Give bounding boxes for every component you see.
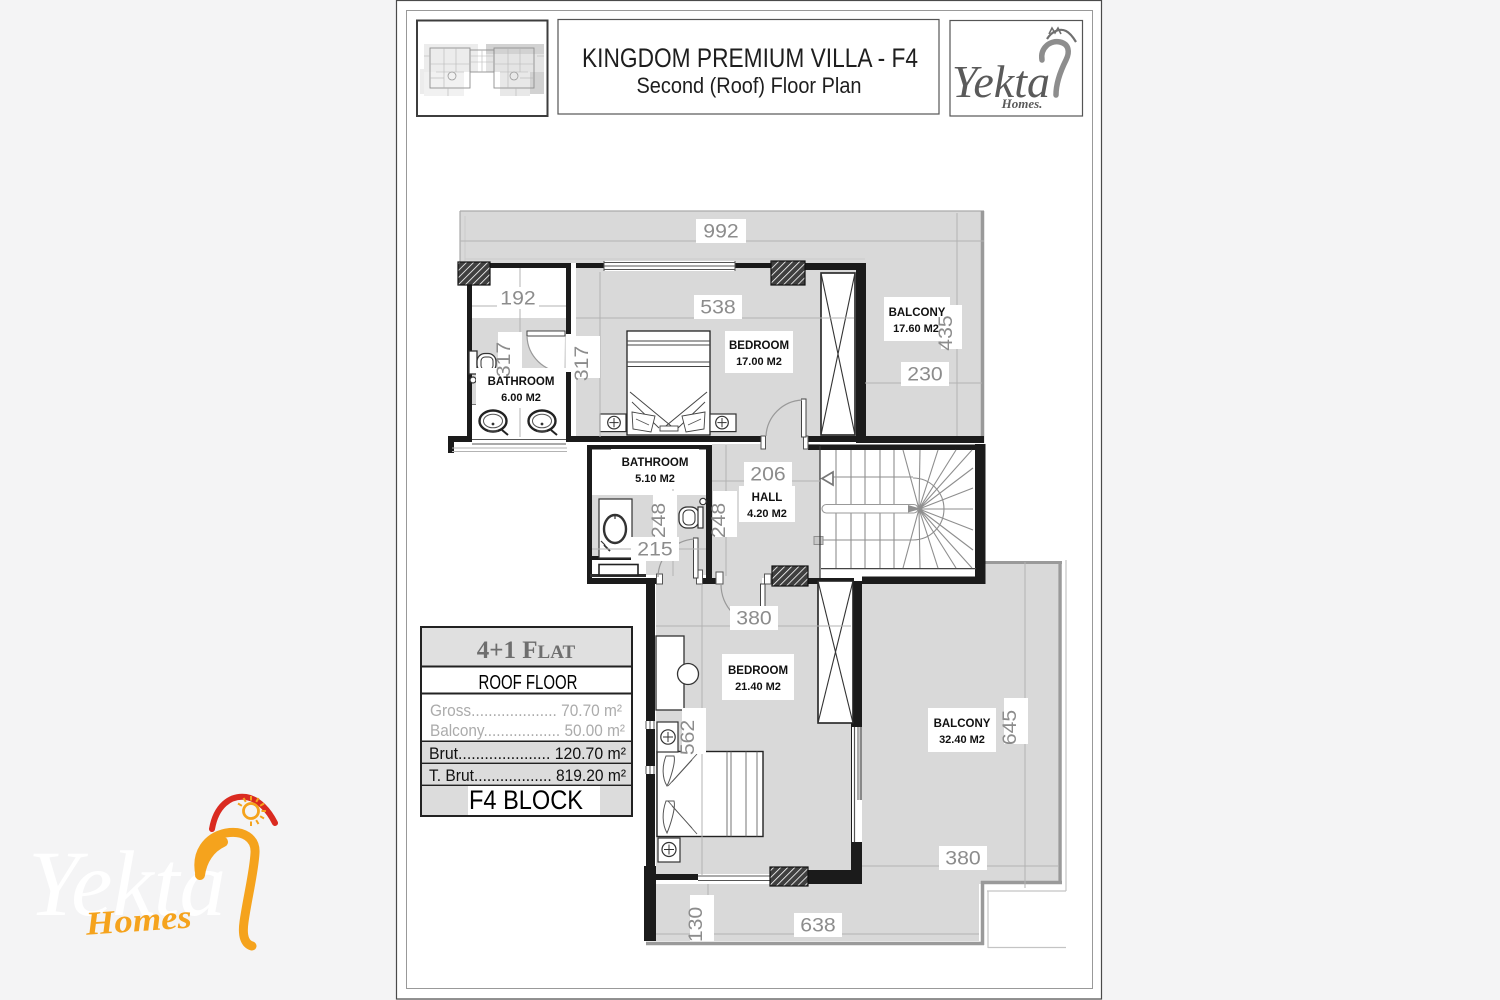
svg-text:BEDROOM: BEDROOM <box>728 665 788 677</box>
svg-text:Balcony.................. 50.0: Balcony.................. 50.00 m² <box>430 722 625 740</box>
svg-text:638: 638 <box>800 915 835 936</box>
svg-text:562: 562 <box>678 720 699 755</box>
svg-text:992: 992 <box>703 221 738 242</box>
svg-text:206: 206 <box>750 464 785 485</box>
svg-text:230: 230 <box>907 364 942 385</box>
svg-text:BEDROOM: BEDROOM <box>729 340 789 352</box>
svg-text:248: 248 <box>709 503 730 538</box>
svg-text:317: 317 <box>494 342 515 377</box>
svg-text:380: 380 <box>945 848 980 869</box>
svg-text:ROOF FLOOR: ROOF FLOOR <box>479 672 578 694</box>
svg-text:HALL: HALL <box>752 492 783 504</box>
svg-text:538: 538 <box>700 297 735 318</box>
svg-text:Gross.................... 70.7: Gross.................... 70.70 m² <box>430 702 622 720</box>
svg-text:KINGDOM PREMIUM VILLA - F4: KINGDOM PREMIUM VILLA - F4 <box>582 43 918 73</box>
svg-text:32.40 M2: 32.40 M2 <box>939 734 985 746</box>
svg-text:248: 248 <box>649 503 670 538</box>
svg-text:17.60 M2: 17.60 M2 <box>893 323 939 335</box>
svg-text:317: 317 <box>572 346 593 381</box>
svg-text:Homes: Homes <box>83 899 192 942</box>
svg-text:192: 192 <box>500 288 535 309</box>
svg-text:BALCONY: BALCONY <box>934 718 991 730</box>
svg-text:21.40 M2: 21.40 M2 <box>735 681 781 693</box>
svg-text:5.10 M2: 5.10 M2 <box>635 473 675 485</box>
svg-text:215: 215 <box>637 539 672 560</box>
svg-text:6.00 M2: 6.00 M2 <box>501 392 541 404</box>
svg-text:F4 BLOCK: F4 BLOCK <box>469 785 583 815</box>
svg-text:Second (Roof) Floor Plan: Second (Roof) Floor Plan <box>637 73 862 98</box>
svg-text:Homes.: Homes. <box>1001 96 1043 111</box>
svg-text:380: 380 <box>736 608 771 629</box>
svg-text:17.00 M2: 17.00 M2 <box>736 356 782 368</box>
svg-text:4+1 FLAT: 4+1 FLAT <box>477 637 576 664</box>
svg-text:4.20 M2: 4.20 M2 <box>747 508 787 520</box>
svg-text:BALCONY: BALCONY <box>889 307 946 319</box>
svg-text:T. Brut.................. 819.: T. Brut.................. 819.20 m² <box>429 767 626 785</box>
svg-text:435: 435 <box>936 315 957 350</box>
svg-text:Brut..................... 120.: Brut..................... 120.70 m² <box>429 745 626 763</box>
svg-text:130: 130 <box>686 907 707 942</box>
svg-text:645: 645 <box>1000 710 1021 745</box>
svg-text:BATHROOM: BATHROOM <box>622 457 689 469</box>
